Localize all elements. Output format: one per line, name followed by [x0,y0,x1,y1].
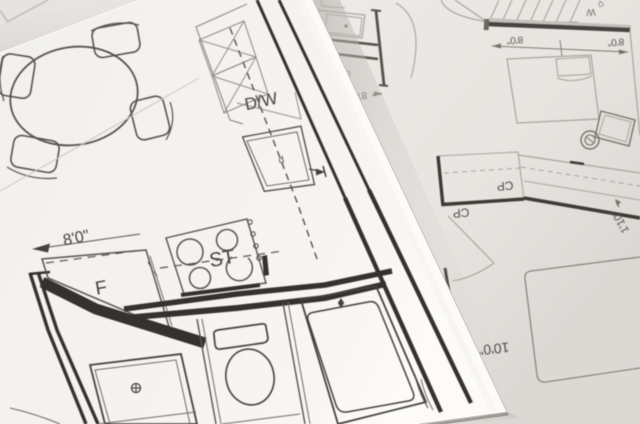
svg-text:8'0": 8'0" [506,33,524,45]
svg-text:CP: CP [452,205,470,220]
svg-text:W: W [585,6,595,17]
svg-text:Q: Q [598,0,604,7]
svg-text:8'0": 8'0" [607,35,625,47]
svg-text:CP: CP [496,178,514,193]
